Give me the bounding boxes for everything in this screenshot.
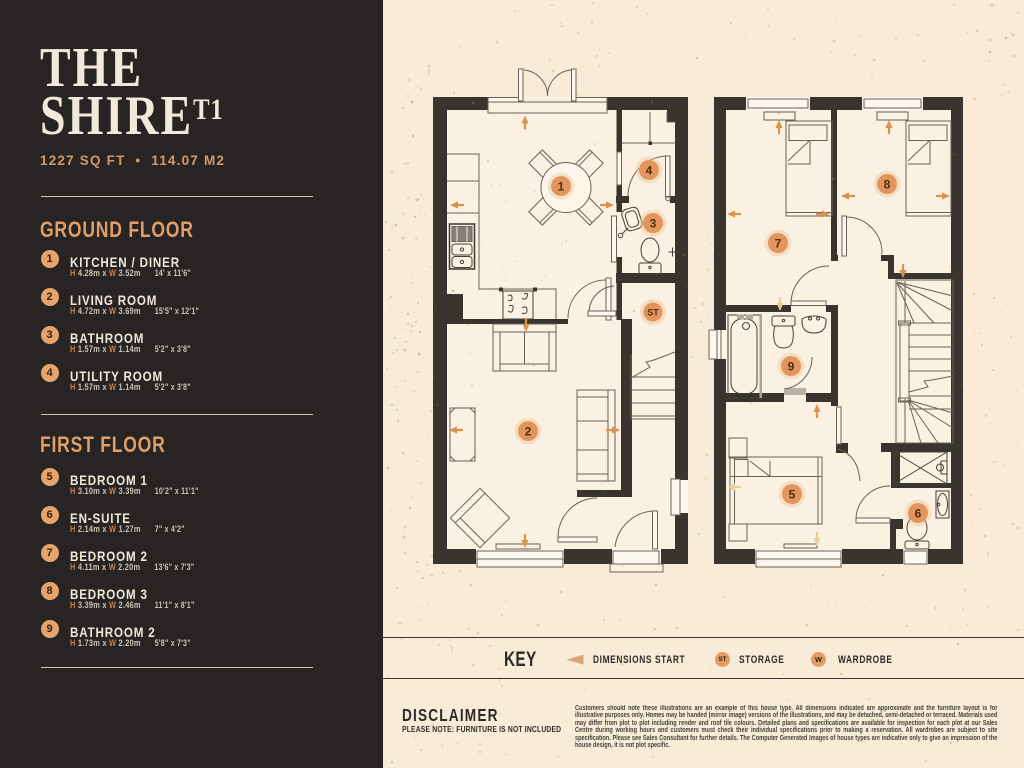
svg-text:5: 5 — [789, 488, 796, 502]
svg-text:9: 9 — [788, 360, 795, 374]
svg-text:2: 2 — [525, 425, 532, 439]
svg-text:4: 4 — [646, 164, 653, 178]
svg-text:ST: ST — [647, 308, 659, 318]
svg-text:6: 6 — [915, 507, 922, 521]
svg-text:1: 1 — [558, 180, 565, 194]
svg-text:3: 3 — [650, 217, 657, 231]
svg-text:8: 8 — [884, 178, 891, 192]
svg-text:7: 7 — [775, 237, 782, 251]
